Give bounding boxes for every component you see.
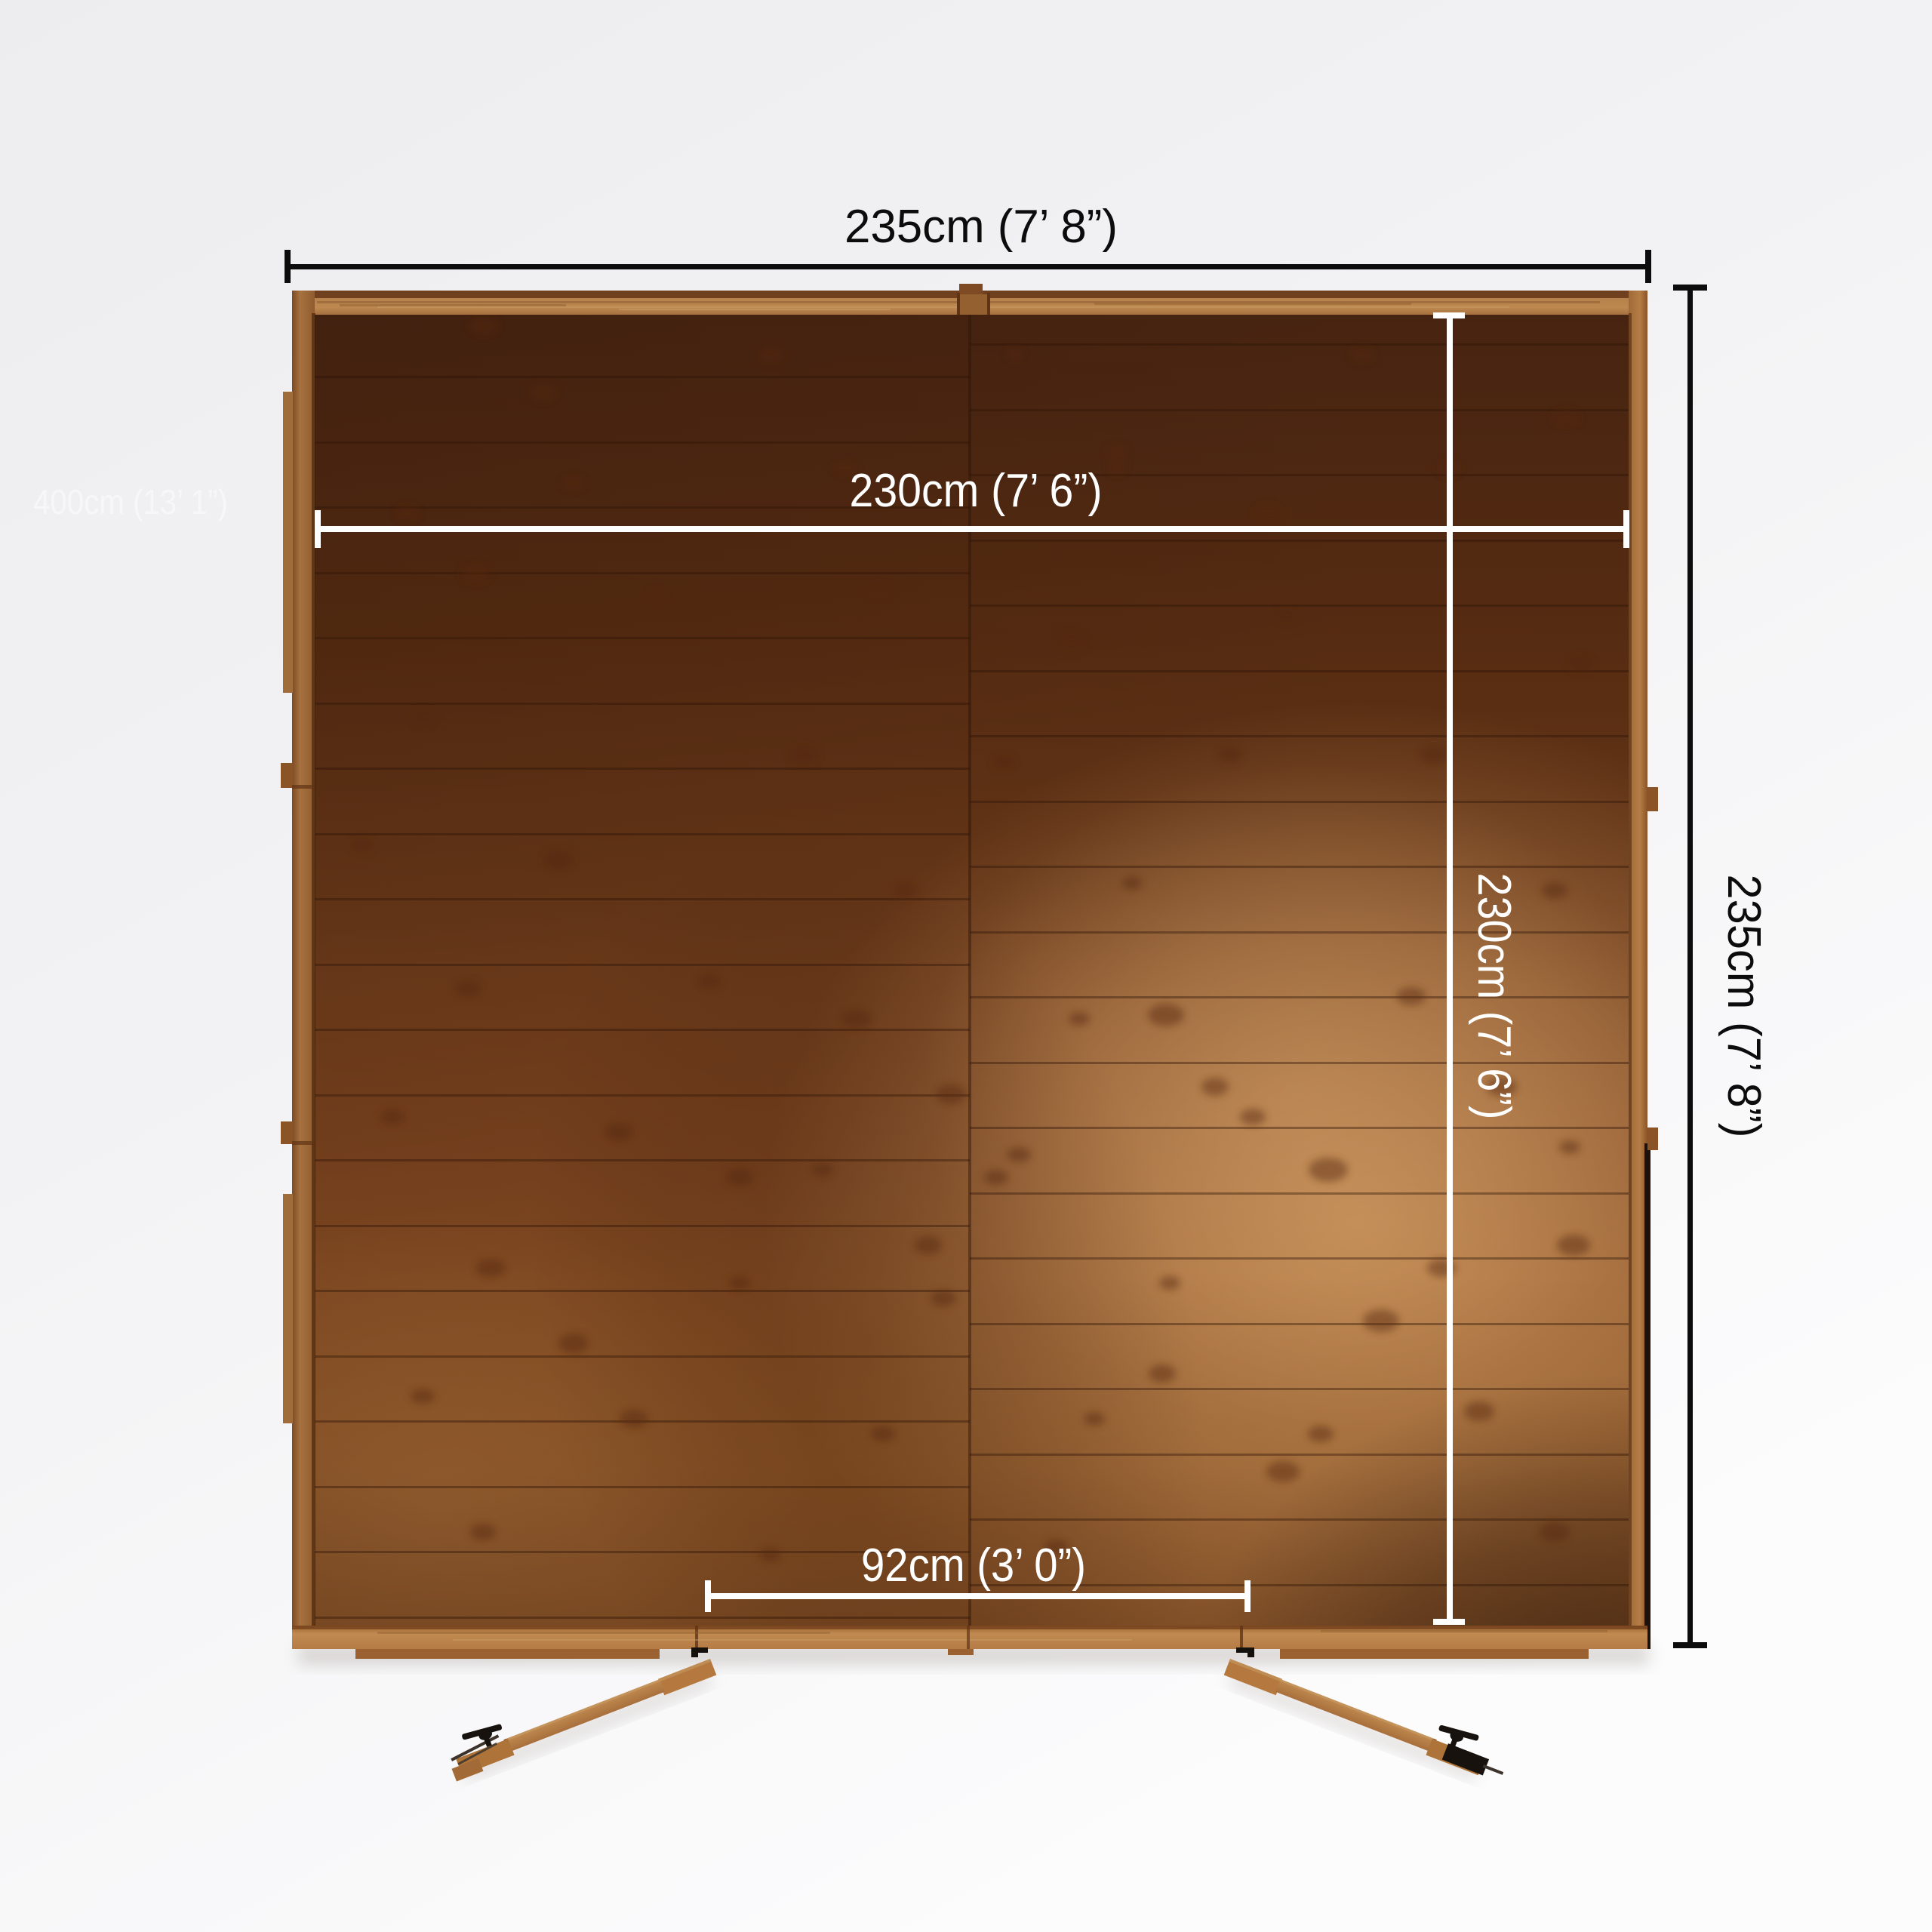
svg-text:92cm (3’ 0”): 92cm (3’ 0”) [861,1540,1086,1592]
svg-text:230cm (7’ 6”): 230cm (7’ 6”) [850,465,1103,517]
svg-text:230cm (7’ 6”): 230cm (7’ 6”) [1468,873,1520,1120]
svg-text:400cm (13’ 1”): 400cm (13’ 1”) [33,482,228,521]
svg-text:235cm (7’ 8”): 235cm (7’ 8”) [844,201,1118,253]
svg-text:235cm (7’ 8”): 235cm (7’ 8”) [1718,875,1770,1138]
